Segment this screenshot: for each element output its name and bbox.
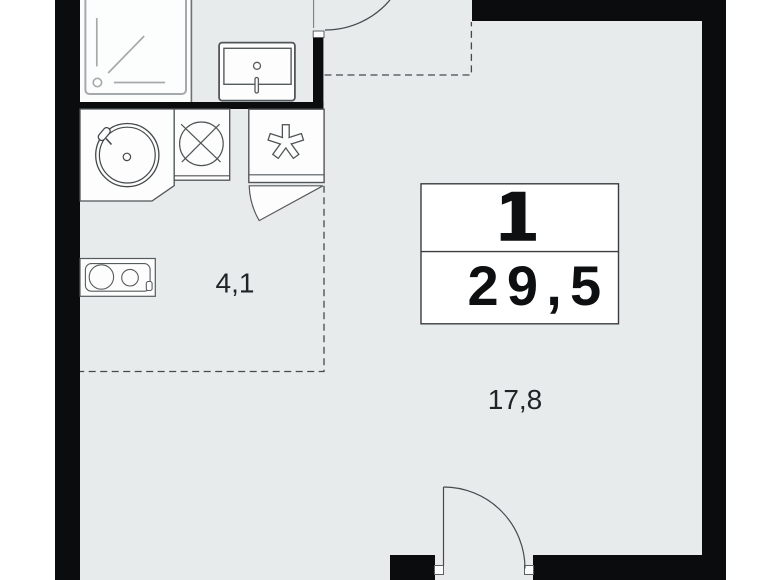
svg-text:4,1: 4,1 — [216, 267, 255, 298]
svg-text:17,8: 17,8 — [488, 384, 543, 415]
svg-text:29,5: 29,5 — [468, 254, 610, 317]
